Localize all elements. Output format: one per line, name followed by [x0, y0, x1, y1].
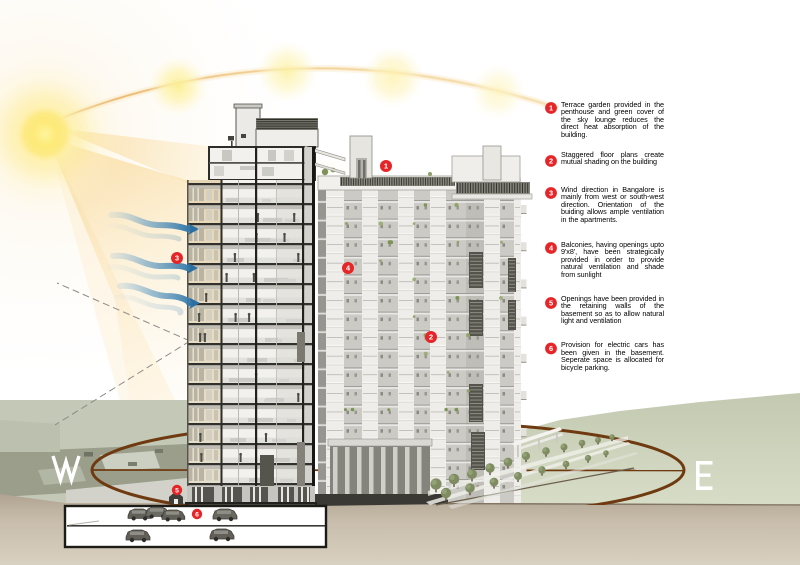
svg-text:5: 5 [175, 487, 179, 494]
svg-text:3: 3 [549, 189, 553, 198]
svg-text:6: 6 [195, 511, 199, 518]
svg-text:3: 3 [175, 254, 179, 263]
svg-text:1: 1 [549, 104, 553, 113]
svg-text:2: 2 [429, 333, 433, 342]
svg-text:6: 6 [549, 344, 553, 353]
svg-text:2: 2 [549, 157, 553, 166]
svg-text:5: 5 [549, 299, 553, 308]
